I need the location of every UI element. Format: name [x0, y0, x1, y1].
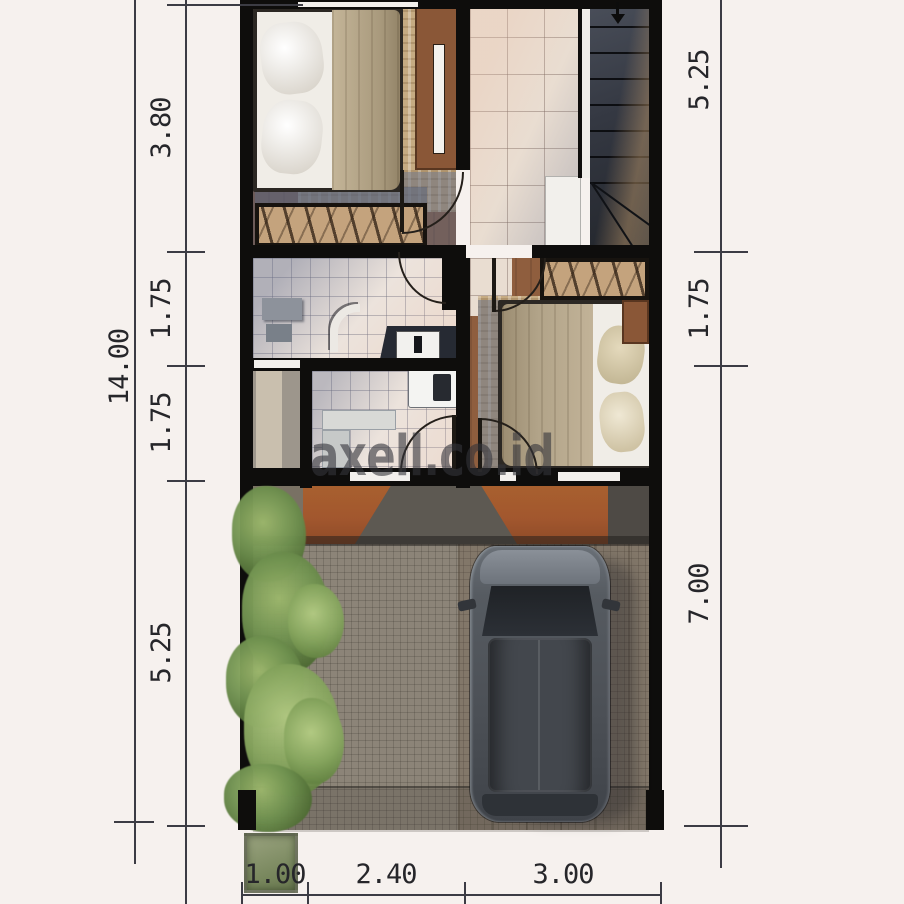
- dim-label-left-2: 1.75: [146, 358, 178, 488]
- bathroom-1-stool: [266, 324, 292, 342]
- dim-tick-bottom-3: [660, 882, 662, 904]
- dim-tick-left-0: [167, 4, 303, 6]
- car-windshield: [482, 586, 598, 636]
- car: [466, 544, 636, 830]
- dim-tick-left-total-bottom: [114, 821, 154, 823]
- dim-line-right: [720, 0, 722, 868]
- window-front-3: [558, 472, 620, 481]
- stair-wall-strip: [582, 0, 590, 178]
- stair-landing: [545, 176, 581, 246]
- car-hood: [480, 550, 600, 584]
- boundary-wall-right: [649, 0, 662, 830]
- dim-line-bottom: [242, 894, 662, 896]
- window-top: [298, 2, 418, 7]
- car-rear-window: [482, 794, 598, 816]
- dim-tick-left-4: [167, 825, 205, 827]
- door-leaf-bedroom-1: [400, 170, 404, 232]
- dim-label-right-1: 1.75: [684, 244, 716, 374]
- dim-tick-right-2: [684, 825, 748, 827]
- vanity-tap: [414, 336, 422, 353]
- toilet-lid: [433, 374, 451, 401]
- door-leaf-bedroom-2: [492, 258, 496, 312]
- dim-label-right-2: 7.00: [684, 529, 716, 659]
- wardrobe-2-hangers: [540, 258, 649, 300]
- tree-3: [288, 584, 344, 658]
- stairs-arrow-shaft: [616, 2, 619, 14]
- dim-label-bottom-0: 1.00: [215, 859, 335, 891]
- gate-post-left: [238, 790, 256, 830]
- dim-line-left: [185, 0, 187, 904]
- dim-label-left-3: 5.25: [146, 588, 178, 718]
- window-side: [254, 360, 300, 368]
- bed-1-blanket-folds: [332, 10, 400, 190]
- dim-line-left-total: [134, 0, 136, 864]
- dim-label-bottom-1: 2.40: [326, 859, 446, 891]
- car-roof: [488, 638, 592, 792]
- wall-mid-right: [532, 245, 662, 258]
- dim-label-right-0: 5.25: [684, 15, 716, 145]
- floor-plan-canvas: axell.co.id 14.00 3.80 1.75 1.75 5.25 5.…: [0, 0, 904, 904]
- wall-bedroom1-hall: [456, 0, 470, 170]
- bedroom-1-door-slot: [433, 44, 445, 154]
- car-roof-seam: [538, 640, 540, 790]
- bedside-table: [622, 300, 649, 344]
- dim-tick-bottom-2: [464, 882, 466, 904]
- dim-label-left-total: 14.00: [104, 302, 136, 432]
- dim-label-left-1: 1.75: [146, 244, 178, 374]
- watermark: axell.co.id: [310, 424, 554, 489]
- dim-label-left-0: 3.80: [146, 63, 178, 193]
- dim-label-bottom-2: 3.00: [503, 859, 623, 891]
- stairs-down-arrow-icon: [611, 14, 625, 24]
- gate-post-right: [646, 790, 664, 830]
- bathroom-1-shelf: [262, 298, 302, 320]
- staircase-highlight: [590, 0, 649, 252]
